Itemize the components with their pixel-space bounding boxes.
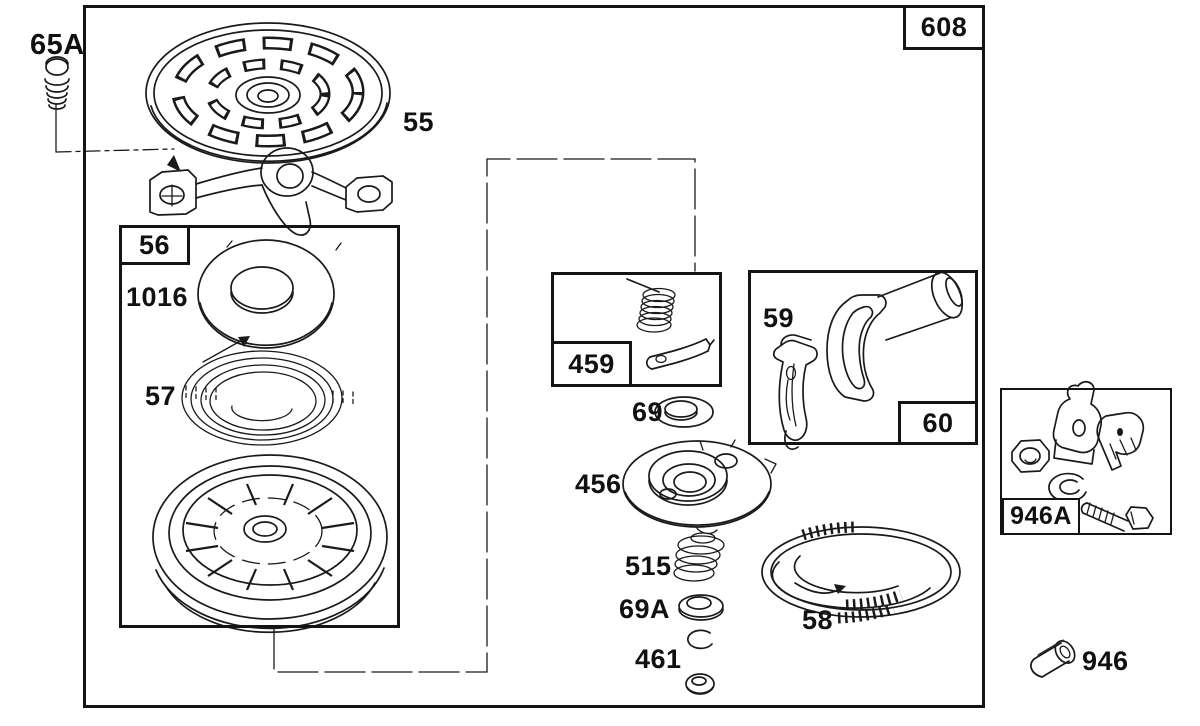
parts-diagram: 608 56 459 60 946A 65A 55 1016 57 69 456… xyxy=(0,0,1200,726)
hardware-kit-number: 946A xyxy=(1010,502,1072,531)
callout-1016: 1016 xyxy=(126,282,188,313)
callout-65a: 65A xyxy=(30,29,85,62)
main-assembly-number: 608 xyxy=(921,12,968,43)
callout-515: 515 xyxy=(625,551,672,582)
callout-57: 57 xyxy=(145,381,176,412)
pawl-spring-kit-number: 459 xyxy=(568,349,615,380)
callout-58: 58 xyxy=(802,605,833,636)
hardware-kit-label: 946A xyxy=(1002,498,1080,535)
callout-69a: 69A xyxy=(619,594,670,625)
callout-55: 55 xyxy=(403,107,434,138)
callout-461: 461 xyxy=(635,644,682,675)
callout-69: 69 xyxy=(632,397,663,428)
pawl-spring-kit-label: 459 xyxy=(551,341,632,387)
rope-clip-946-drawing xyxy=(1031,637,1079,677)
handle-grip-number: 60 xyxy=(922,408,953,439)
main-assembly-label: 608 xyxy=(903,5,985,50)
callout-456: 456 xyxy=(575,469,622,500)
pulley-assembly-number: 56 xyxy=(139,230,170,261)
pulley-assembly-label: 56 xyxy=(119,225,190,265)
callout-946: 946 xyxy=(1082,646,1129,677)
handle-grip-label: 60 xyxy=(898,401,978,445)
screw-65a-drawing xyxy=(45,57,69,109)
callout-59: 59 xyxy=(763,303,794,334)
